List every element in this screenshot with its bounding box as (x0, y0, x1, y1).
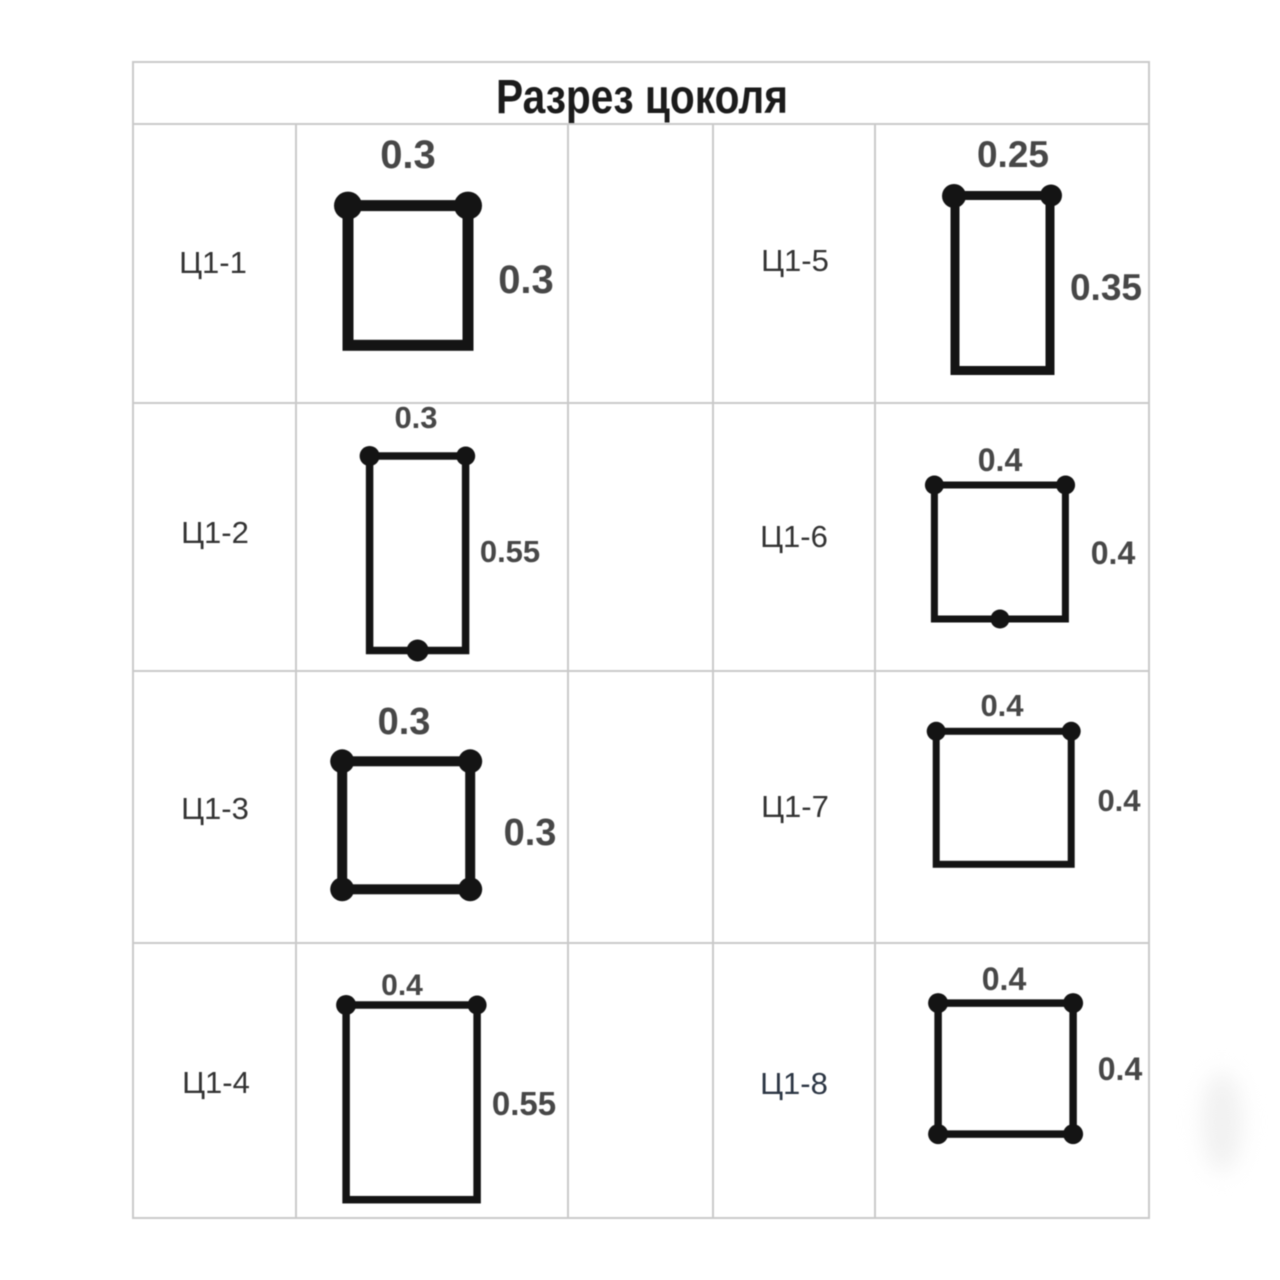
svg-text:0.3: 0.3 (498, 258, 554, 302)
svg-text:0.4: 0.4 (978, 442, 1023, 478)
svg-text:Ц1-4: Ц1-4 (182, 1065, 250, 1100)
svg-text:Ц1-8: Ц1-8 (760, 1066, 828, 1101)
svg-text:Ц1-3: Ц1-3 (181, 791, 249, 826)
svg-text:Ц1-2: Ц1-2 (181, 515, 249, 550)
svg-text:0.4: 0.4 (381, 969, 423, 1002)
svg-text:0.3: 0.3 (378, 701, 431, 743)
svg-text:0.3: 0.3 (394, 400, 437, 435)
svg-text:0.3: 0.3 (380, 133, 436, 177)
svg-text:0.55: 0.55 (492, 1085, 556, 1122)
svg-text:0.35: 0.35 (1070, 267, 1142, 308)
svg-text:0.4: 0.4 (1091, 535, 1136, 571)
svg-text:Ц1-6: Ц1-6 (760, 519, 828, 554)
svg-text:0.25: 0.25 (977, 134, 1049, 175)
svg-text:0.3: 0.3 (504, 812, 557, 854)
svg-text:Разрез цоколя: Разрез цоколя (496, 71, 788, 124)
svg-text:Ц1-7: Ц1-7 (761, 789, 829, 824)
svg-text:0.4: 0.4 (982, 961, 1027, 997)
svg-text:0.4: 0.4 (1097, 783, 1141, 818)
svg-text:0.4: 0.4 (1098, 1051, 1143, 1087)
svg-text:0.4: 0.4 (980, 688, 1024, 723)
svg-text:Ц1-5: Ц1-5 (761, 243, 829, 278)
svg-text:0.55: 0.55 (480, 534, 540, 569)
svg-text:Ц1-1: Ц1-1 (179, 245, 247, 280)
